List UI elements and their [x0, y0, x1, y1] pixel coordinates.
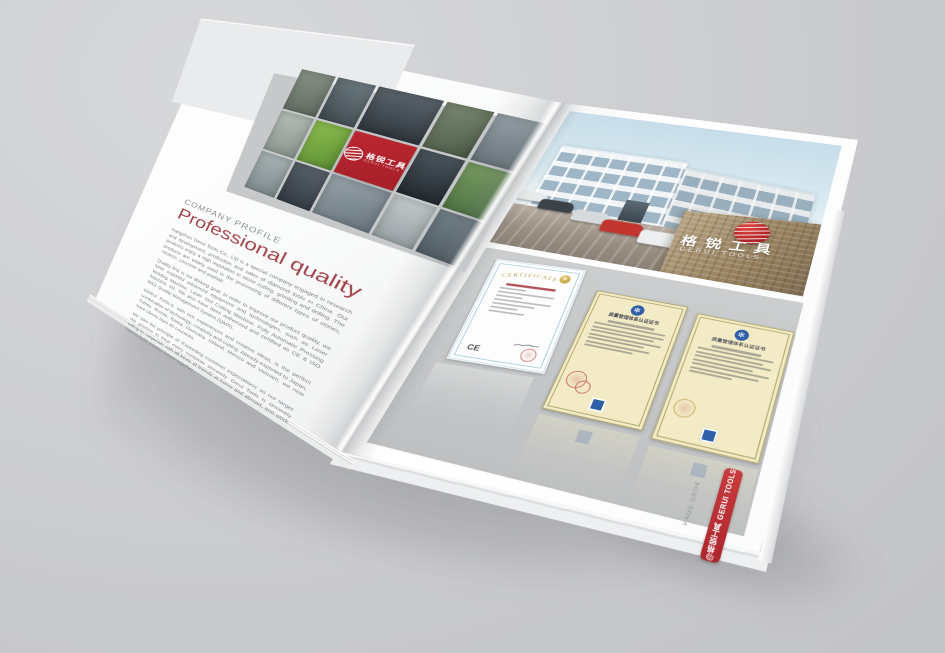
blue-seal-icon: [588, 397, 607, 412]
blue-seal-reflection: [690, 462, 708, 478]
brochure-mockup-scene: 格锐工具 GERUI TOOLS COMPANY PROFILE Profess…: [0, 0, 945, 653]
certification-emblem-icon: ✻: [629, 304, 646, 317]
certification-emblem-icon: ✻: [733, 328, 750, 341]
certificate-reflection: [510, 414, 640, 502]
ce-mark: CE: [465, 342, 481, 352]
red-stamp-icon: [518, 348, 539, 363]
cert-text-line: [488, 309, 525, 316]
ce-certificate-frame: CERTIFICATE ✶ CE: [453, 263, 580, 369]
blue-seal-icon: [699, 427, 718, 443]
certificate-reflection: [408, 362, 534, 434]
blue-seal-reflection: [575, 430, 593, 445]
gold-stamp-icon: [671, 397, 699, 420]
